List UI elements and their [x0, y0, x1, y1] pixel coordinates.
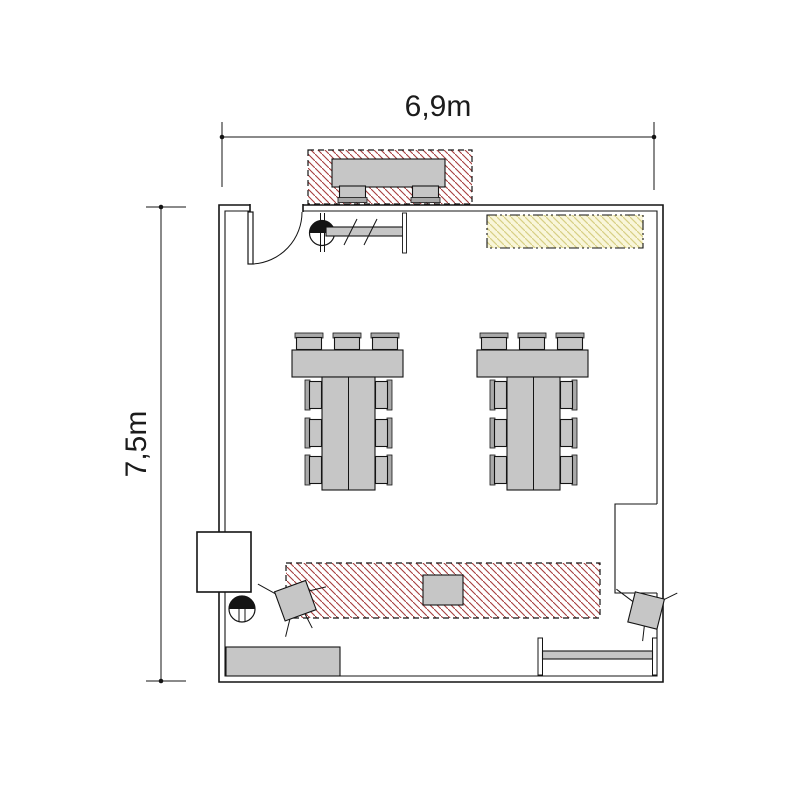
entry-fixtures [310, 213, 407, 253]
chair [371, 333, 399, 350]
table-top [477, 350, 588, 377]
door-swing-arc [253, 212, 302, 264]
table-group-right [477, 333, 588, 490]
sideboard [226, 647, 340, 676]
chair [333, 333, 361, 350]
entrance-door [248, 212, 302, 264]
rail-end-post [403, 213, 407, 253]
chair [556, 333, 584, 350]
width-dimension-label: 6,9m [358, 92, 518, 122]
chair [561, 418, 578, 448]
table-top [292, 350, 403, 377]
chair [305, 380, 322, 410]
chair [376, 380, 393, 410]
storage-zone-yellow [487, 215, 643, 248]
chair [490, 418, 507, 448]
chair [490, 380, 507, 410]
teacher-desk [332, 159, 445, 187]
teacher-chair [338, 186, 367, 203]
wall-recess-left [197, 532, 251, 592]
loose-chair-right [606, 579, 678, 647]
chair [561, 380, 578, 410]
washbasin-bottom [229, 596, 255, 622]
height-dimension-label: 7,5m [122, 411, 152, 478]
chair [490, 455, 507, 485]
chair [376, 418, 393, 448]
chair [376, 455, 393, 485]
chair [480, 333, 508, 350]
chair [305, 455, 322, 485]
activity-desk [423, 575, 463, 605]
floor-plan-canvas: 6,9m 7,5m [0, 0, 790, 790]
teacher-chair [411, 186, 440, 203]
door-leaf [248, 212, 253, 264]
wall-recess-right [615, 504, 657, 593]
door-jambs [250, 204, 303, 212]
chair [518, 333, 546, 350]
table-group-left [292, 333, 403, 490]
coat-rail [326, 227, 405, 236]
chair [305, 418, 322, 448]
chair [561, 455, 578, 485]
radiator [538, 638, 657, 675]
chair [295, 333, 323, 350]
